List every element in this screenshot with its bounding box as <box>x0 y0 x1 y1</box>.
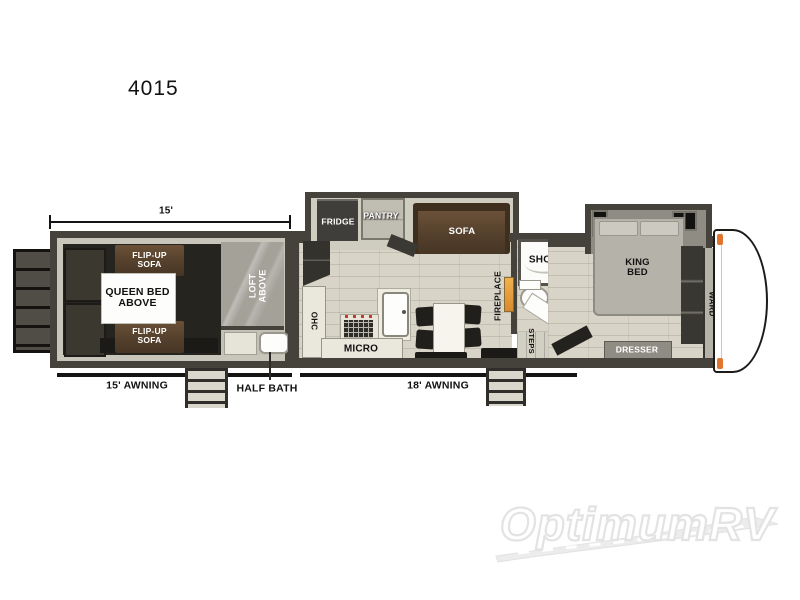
half-bath-vanity <box>224 332 257 355</box>
garage-entry-steps <box>185 368 228 408</box>
fireplace <box>504 277 514 312</box>
dimension-tick-left <box>49 215 51 229</box>
awning-line-right <box>300 373 577 377</box>
pantry-label: PANTRY <box>363 211 398 220</box>
watermark-text: OptimumRV <box>500 498 777 550</box>
garage-dimension-label: 15' <box>159 207 173 218</box>
flip-up-sofa-bottom-label: FLIP-UP SOFA <box>115 327 184 345</box>
garage-dimension-line <box>50 221 290 223</box>
king-bed-pillow-left <box>599 221 638 236</box>
stove-knobs <box>345 315 373 318</box>
watermark-logo: OptimumRV <box>490 488 792 580</box>
bath-toilet-tank <box>519 280 541 290</box>
king-bed-label: KING BED <box>601 258 674 279</box>
dresser-label: DRESSER <box>616 345 659 354</box>
flip-up-sofa-top-label: FLIP-UP SOFA <box>115 251 184 269</box>
micro-label: MICRO <box>344 345 378 356</box>
dinette-table <box>433 303 465 355</box>
living-sofa-label: SOFA <box>449 227 476 237</box>
half-bath-toilet <box>259 332 289 354</box>
loft-above-label: LOFT ABOVE <box>248 269 267 302</box>
kitchen-sink <box>382 292 409 337</box>
king-bed-pillow-right <box>640 221 679 236</box>
half-bath-leader-line <box>269 352 271 380</box>
fridge-label: FRIDGE <box>321 217 354 226</box>
awning-line-left <box>57 373 292 377</box>
dimension-tick-right <box>289 215 291 229</box>
floorplan-canvas: 4015 15' FLIP-UP SOFA FLIP-UP SOFA QUEEN… <box>0 0 800 600</box>
wardrobe <box>681 246 703 344</box>
front-cap-seam <box>721 233 722 365</box>
half-bath-label: HALF BATH <box>236 383 297 394</box>
awning-right-label: 18' AWNING <box>407 380 469 391</box>
garage-bench-top <box>64 248 106 302</box>
queen-bed-above-label: QUEEN BED ABOVE <box>101 287 174 310</box>
steps-label: STEPS <box>527 328 535 354</box>
fireplace-label: FIREPLACE <box>493 271 502 321</box>
awning-left-label: 15' AWNING <box>106 380 168 391</box>
bottom-wall <box>292 358 716 368</box>
cap-marker-top <box>717 234 723 245</box>
main-entry-steps <box>486 368 526 406</box>
cap-marker-bottom <box>717 358 723 369</box>
ohc-label: OHC <box>309 312 318 330</box>
sink-faucet <box>402 310 406 314</box>
page-title: 4015 <box>128 78 179 101</box>
